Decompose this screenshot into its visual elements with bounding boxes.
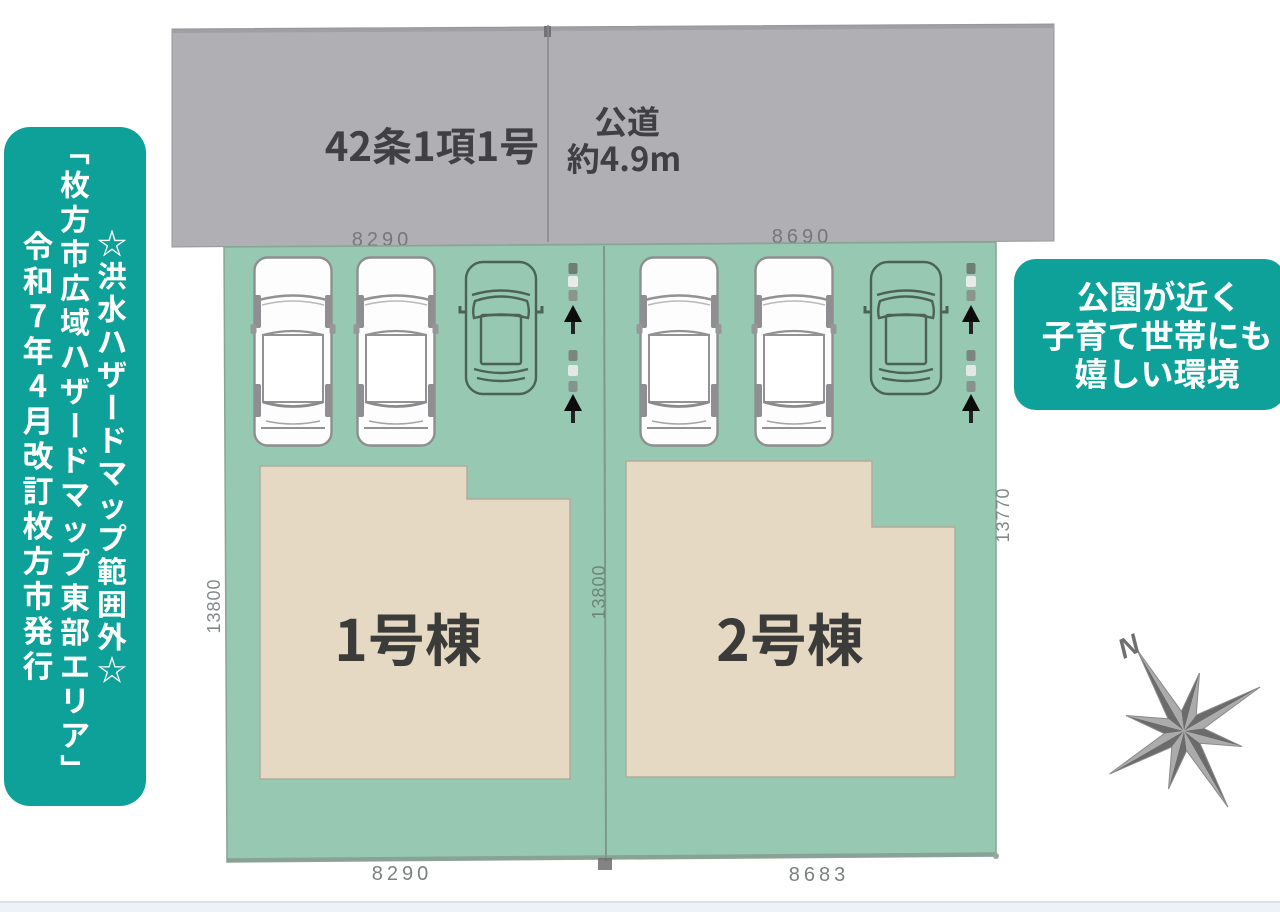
- svg-text:8683: 8683: [789, 864, 850, 886]
- svg-text:13800: 13800: [589, 564, 609, 619]
- svg-text:8290: 8290: [372, 863, 433, 885]
- svg-text:13800: 13800: [204, 578, 224, 633]
- svg-text:13770: 13770: [993, 487, 1013, 542]
